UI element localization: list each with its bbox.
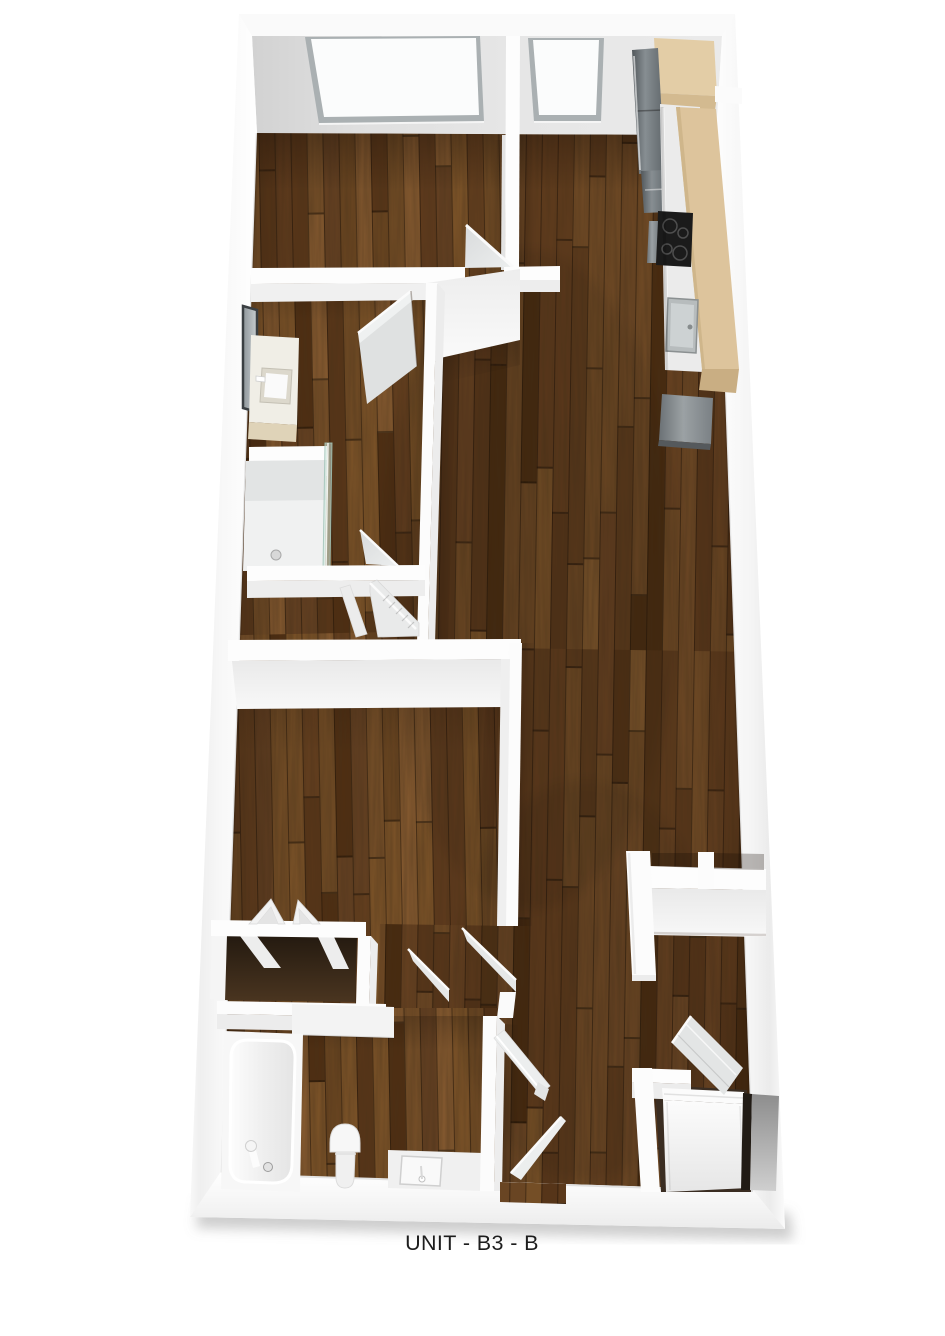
svg-text:UNIT - B3 - B: UNIT - B3 - B <box>405 1231 539 1255</box>
